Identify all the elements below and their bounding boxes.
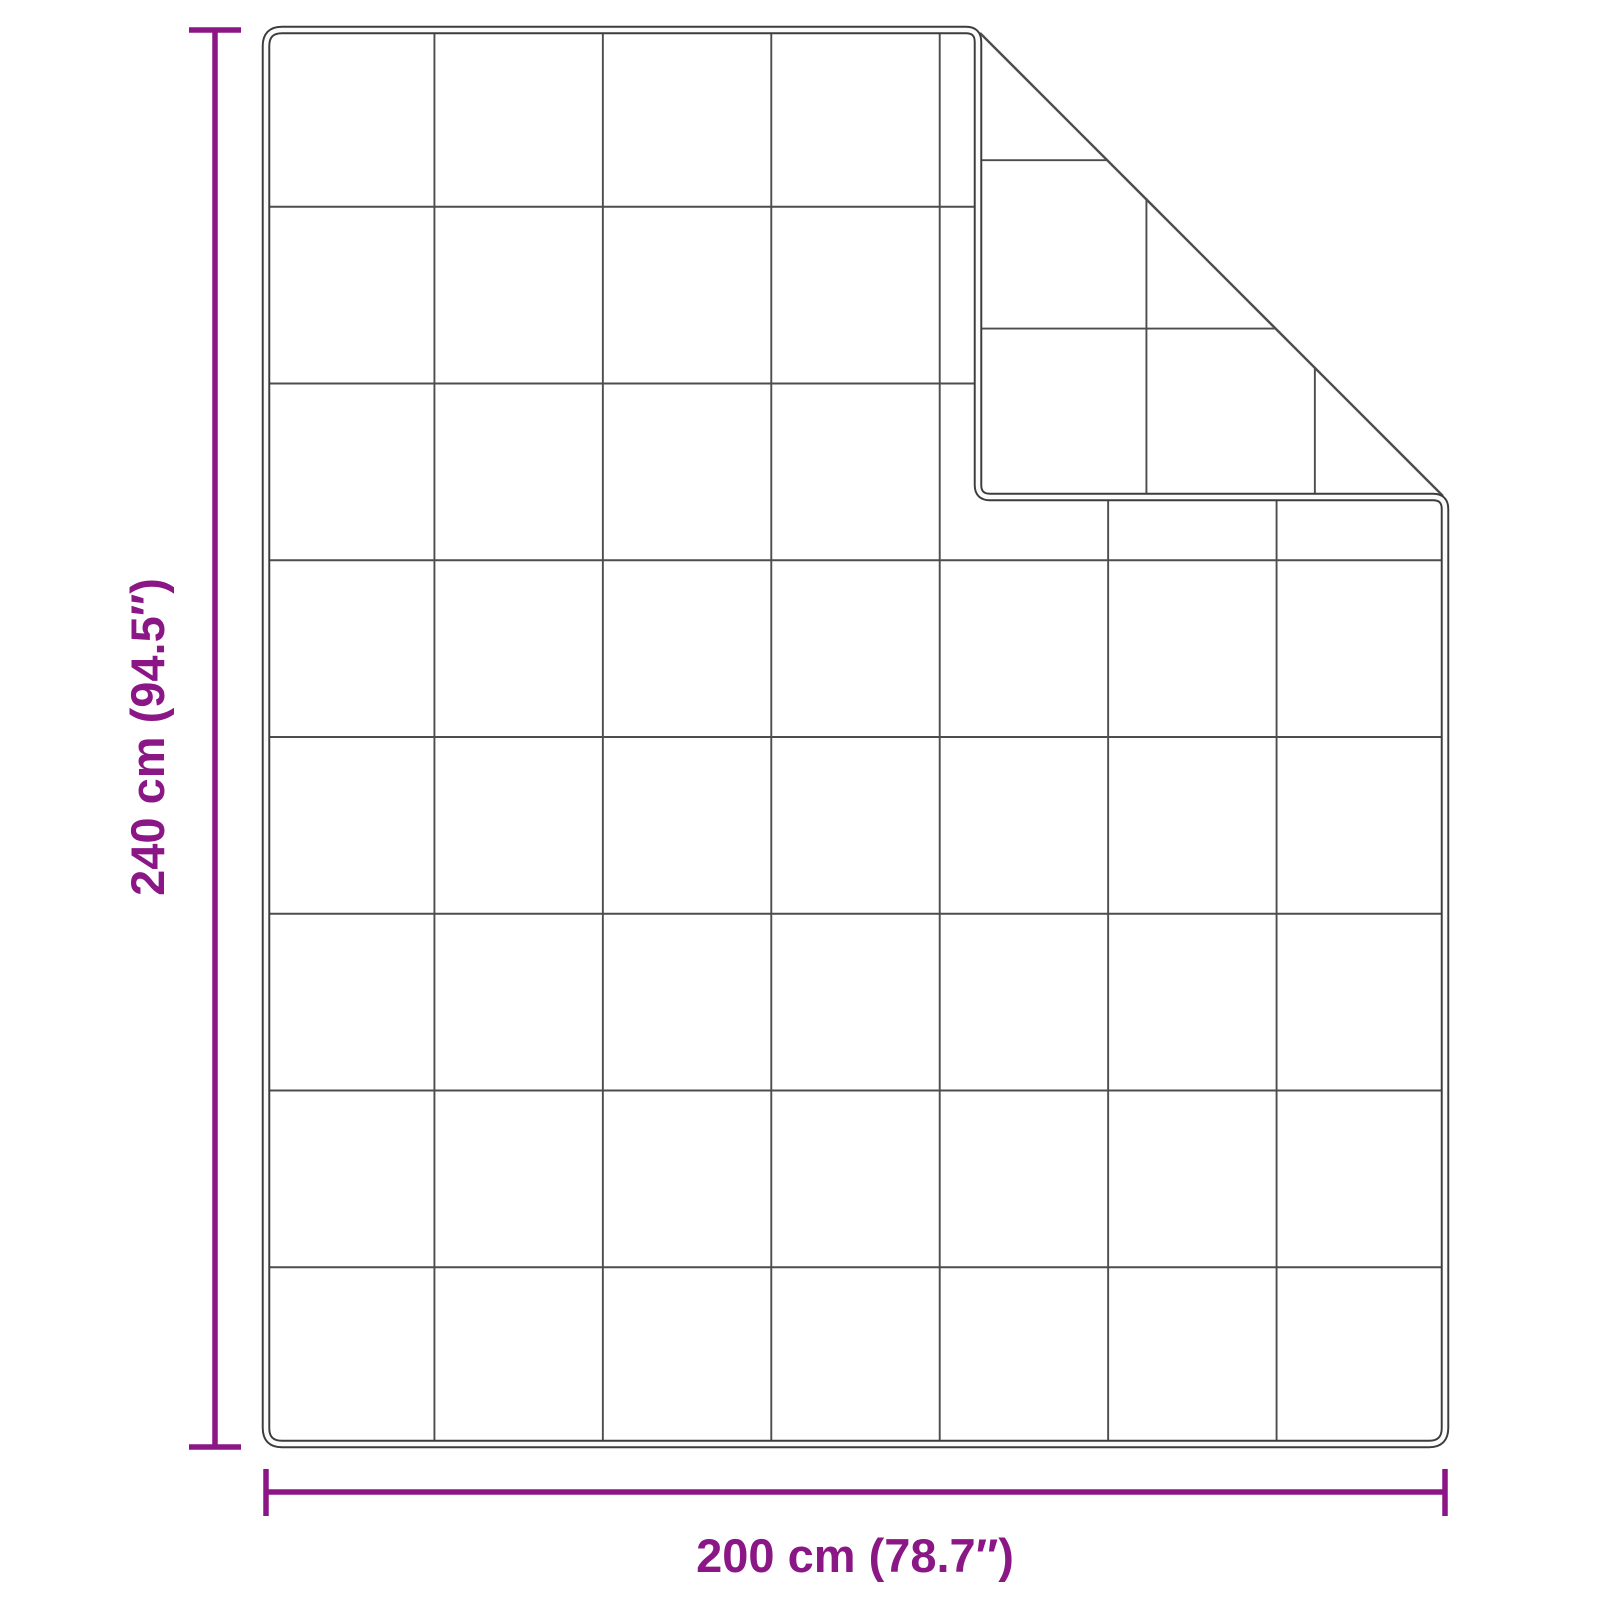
height-dimension-label: 240 cm (94.5″)	[121, 578, 174, 896]
width-dimension-label: 200 cm (78.7″)	[696, 1529, 1014, 1582]
width-dimension: 200 cm (78.7″)	[266, 1469, 1445, 1582]
blanket	[266, 30, 1445, 1444]
blanket-dimension-diagram: 240 cm (94.5″) 200 cm (78.7″)	[0, 0, 1600, 1600]
diagram-stage: 240 cm (94.5″) 200 cm (78.7″)	[0, 0, 1600, 1600]
height-dimension: 240 cm (94.5″)	[121, 30, 241, 1447]
folded-corner-flap	[978, 33, 1443, 497]
flap-fill	[978, 42, 1433, 497]
